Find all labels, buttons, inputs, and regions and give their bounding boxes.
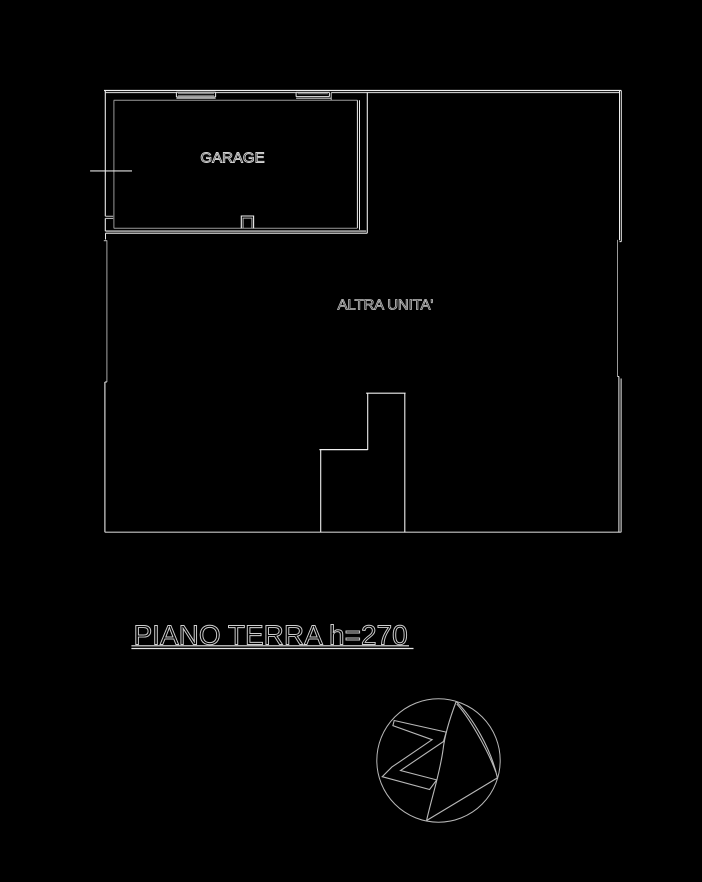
svg-text:ALTRA UNITA': ALTRA UNITA' xyxy=(338,297,434,314)
svg-text:GARAGE: GARAGE xyxy=(200,150,264,167)
